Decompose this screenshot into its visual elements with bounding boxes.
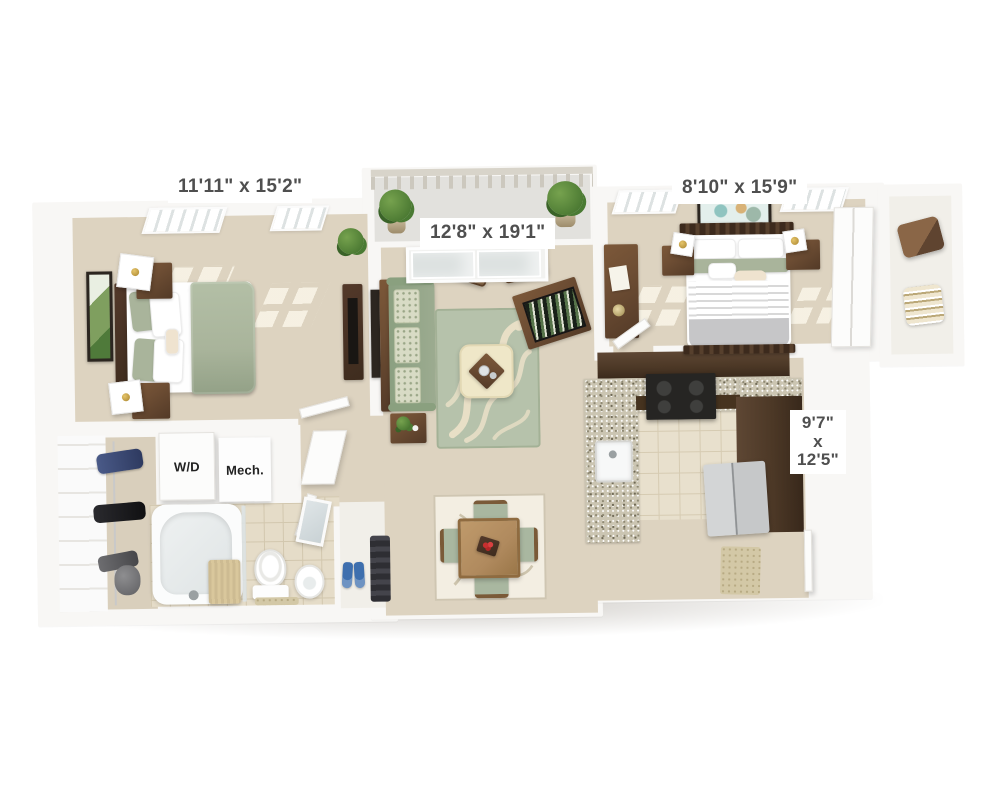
desk-clock (613, 304, 625, 316)
bedroom-left-dimensions-label: 11'11" x 15'2" (168, 172, 312, 203)
kitchen-dim-line3: 12'5" (797, 451, 839, 470)
hanging-clothes (370, 536, 391, 602)
tub-faucet (189, 590, 199, 600)
stove (646, 373, 717, 420)
tv-on-dresser (348, 298, 359, 364)
entry-door (804, 530, 813, 592)
flower-centerpiece (482, 541, 494, 551)
slipper (354, 562, 366, 589)
sink-faucet (609, 450, 617, 458)
towel-stack (903, 284, 945, 326)
table-lamp (670, 232, 695, 257)
glass-pane (411, 250, 475, 279)
kitchen-dim-line2: x (797, 433, 839, 452)
bed-foot-blanket (689, 318, 789, 347)
cup (490, 372, 497, 379)
planter-pot (387, 219, 405, 233)
table-lamp (116, 253, 154, 291)
kitchen-dimensions-label: 9'7" x 12'5" (790, 410, 846, 474)
artwork-canvas (89, 274, 110, 358)
floor-plan-image: W/D Mech. (0, 0, 1000, 800)
small-plant (396, 416, 410, 430)
cup (412, 425, 418, 431)
window (141, 207, 227, 234)
kitchen-sink (595, 440, 634, 483)
shower-curtain (208, 560, 241, 604)
closet-sliding-doors (831, 207, 874, 348)
kitchen-dim-line1: 9'7" (797, 414, 839, 433)
cup (480, 366, 489, 375)
sofa-cushion (394, 327, 421, 363)
slipper (342, 562, 353, 589)
entry-door-mat (720, 546, 761, 595)
glass-pane (477, 249, 541, 278)
mechanical-closet-unit: Mech. (219, 437, 272, 502)
pillow (738, 238, 784, 259)
window (270, 205, 330, 231)
bed-striped-blanket (688, 280, 789, 321)
bed-blanket (190, 281, 256, 394)
living-room-dimensions-label: 12'8" x 19'1" (420, 218, 555, 249)
bath-mat (255, 597, 299, 606)
washer-dryer-closet-door: W/D (158, 432, 215, 501)
refrigerator (703, 461, 770, 537)
bedroom-right-dimensions-label: 8'10" x 15'9" (672, 173, 807, 204)
entry-passage-floor (590, 540, 809, 601)
desk-papers (609, 265, 630, 291)
sofa-cushion (393, 289, 419, 323)
television (522, 286, 586, 342)
accent-pillow (708, 263, 736, 279)
apartment-plan: W/D Mech. (0, 0, 1000, 807)
table-lamp (782, 228, 807, 253)
storage-bag (114, 565, 140, 595)
toilet (254, 549, 287, 587)
wall-artwork (86, 271, 113, 361)
pillow (690, 239, 736, 260)
table-lamp (108, 379, 144, 415)
accent-pillow (165, 328, 179, 354)
bed-footboard (683, 344, 795, 355)
sofa-cushion (395, 367, 422, 403)
sofa-armrest (388, 403, 436, 412)
